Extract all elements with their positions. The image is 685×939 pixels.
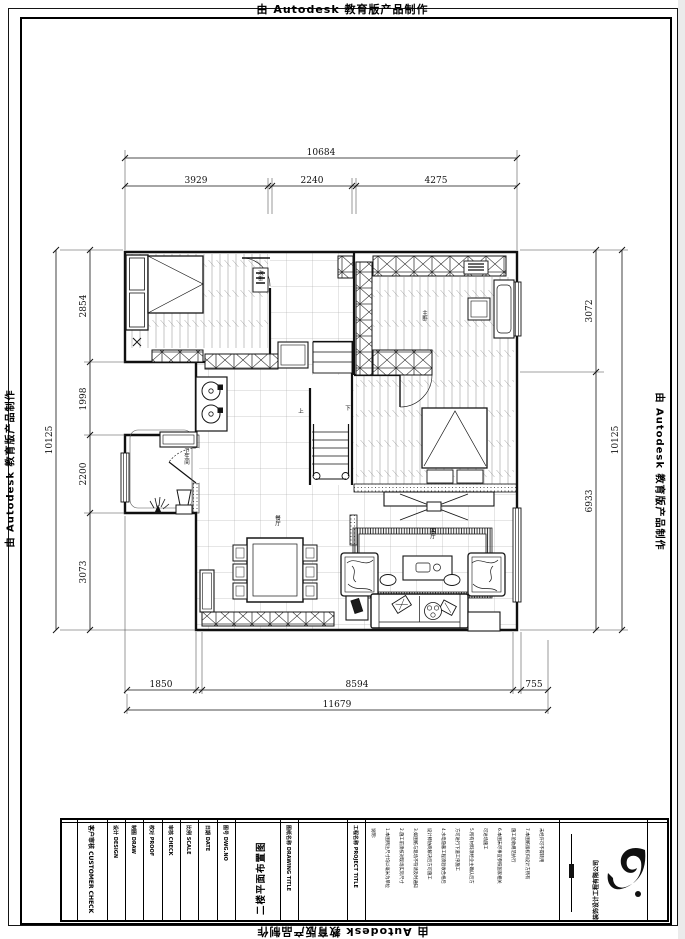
sofa-side-table: [346, 596, 368, 620]
field-dwgno: 图号 DWG.NO: [222, 825, 229, 861]
field-design: 设计 DESIGN: [112, 825, 119, 858]
field-proof: 校对 PROOF: [148, 825, 155, 856]
label-bedroom2: 次卧: [257, 269, 264, 283]
note-line: 设计师协商解决后方可施工: [426, 828, 432, 880]
note-line: 5.所有材料须经业主确认后方: [468, 828, 474, 884]
label-stair-up: 上: [297, 407, 304, 414]
balcony-band-1: [152, 350, 203, 362]
dim-top-2: 2240: [301, 176, 324, 186]
customer-check-label: 客户审核 CUSTOMER CHECK: [87, 825, 96, 913]
note-line: 未经许可不得转用: [538, 828, 544, 862]
vanity-sinks: [196, 377, 227, 431]
note-line: 1.本图所注尺寸均以毫米为单位: [384, 828, 390, 888]
side-table: [468, 298, 490, 320]
dim-left-4: 3073: [79, 560, 89, 583]
dim-left-3: 2200: [79, 462, 89, 485]
drawing-title: 二楼平面布置图: [253, 841, 267, 915]
dining-table: [247, 538, 303, 602]
company-contact-rule: [571, 834, 572, 912]
corner-cabinet: [468, 612, 500, 631]
field-scale: 比例 SCALE: [185, 825, 192, 854]
note-line: 可进场施工: [482, 828, 488, 849]
field-draw: 制图 DRAW: [130, 825, 137, 854]
shelf: [160, 432, 197, 447]
window-seat-desk: [494, 280, 514, 338]
armchair-left: [341, 553, 378, 596]
dim-top-3: 4275: [425, 176, 448, 186]
note-line: 说明:: [370, 828, 376, 838]
master-closet-nook: [373, 350, 432, 375]
armchair-right: [468, 553, 505, 596]
note-line: 7.本图纸版权归设计方所有: [524, 828, 530, 879]
field-check: 审核 CHECK: [167, 825, 174, 856]
coffee-table: [403, 556, 452, 580]
dim-right-1: 3072: [585, 300, 595, 323]
master-wardrobe-left: [356, 262, 372, 375]
balcony-band-2: [205, 354, 278, 369]
dim-right-overall: 10125: [611, 425, 621, 454]
dim-left-1: 2854: [79, 294, 89, 317]
label-master: 主卧: [421, 309, 428, 323]
note-line: 6.本图未尽事宜参照国家相关: [496, 828, 502, 884]
dim-bottom-3: 755: [525, 680, 542, 690]
dim-bottom-overall: 11679: [323, 700, 352, 710]
project-label: 工程名称 PROJECT TITLE: [352, 825, 359, 888]
note-line: 方可进行下道工序施工: [454, 828, 460, 871]
dim-top-overall: 10684: [307, 148, 336, 158]
bed-single: [148, 256, 203, 313]
label-bath: 卫生间: [183, 448, 190, 466]
dim-bottom-1: 1850: [150, 680, 173, 690]
dim-left-2: 1998: [79, 387, 89, 410]
pouf-left: [380, 575, 396, 586]
field-date: 日期 DATE: [204, 825, 211, 851]
floor-plan: 次卧 主卧 卫生间 餐厅 客厅 上 下: [0, 0, 685, 939]
dim-top-1: 3929: [185, 176, 208, 186]
company-name: 装饰设计工程有限公司: [591, 860, 600, 920]
drawing-sheet: 由 Autodesk 教育版产品制作 由 Autodesk 教育版产品制作 由 …: [0, 0, 685, 939]
company-logo: [605, 844, 651, 902]
hall-cabinet: [338, 256, 353, 278]
dim-right-2: 6933: [585, 489, 595, 512]
note-line: 3.如图纸与现场不符请及时通知: [412, 828, 418, 888]
dim-bottom-2: 8594: [346, 680, 369, 690]
bath-window: [121, 453, 129, 502]
title-block: 客户审核 CUSTOMER CHECK 设计 DESIGN 制图 DRAW 校对…: [60, 818, 669, 922]
living-window: [513, 508, 521, 602]
dim-left-overall: 10125: [45, 425, 55, 454]
drawing-title-label: 图纸名称 DRAWING TITLE: [285, 825, 292, 891]
pouf-right: [444, 575, 460, 586]
note-line: 2.施工前须核对现场实际尺寸: [398, 828, 404, 884]
dresser-tv: [464, 261, 488, 274]
shower-symbol: [150, 497, 169, 513]
label-dining: 餐厅: [274, 514, 281, 527]
dining-bay-window: [202, 612, 334, 626]
toilet: [176, 490, 192, 514]
note-line: 4.水电隐蔽工程须验收合格后: [440, 828, 446, 884]
label-living: 客厅: [429, 527, 436, 540]
sofa: [371, 594, 468, 628]
hall-shoe-cabinet: [278, 342, 308, 368]
note-line: 施工验收规范执行: [510, 828, 516, 862]
sideboard: [200, 570, 214, 612]
